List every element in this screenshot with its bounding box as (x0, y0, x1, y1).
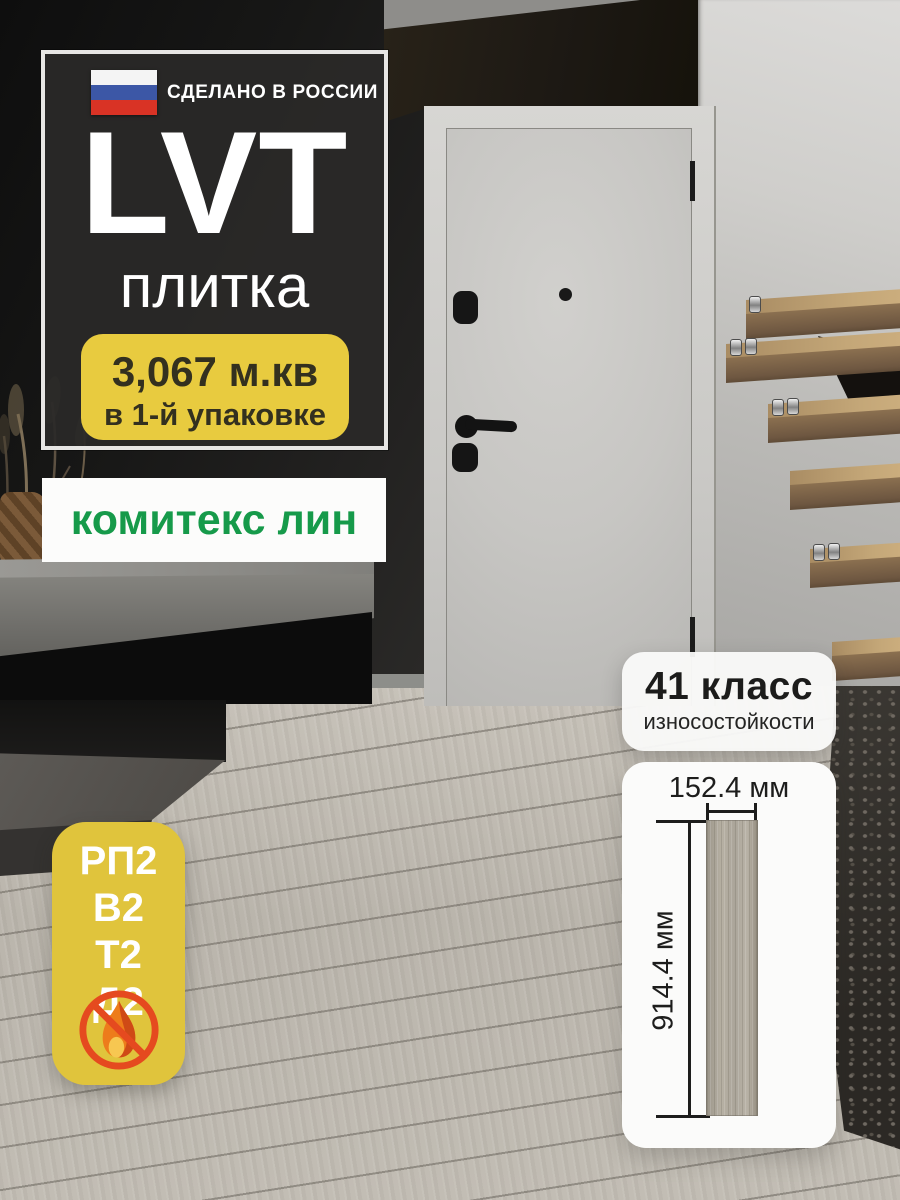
product-subtitle: плитка (45, 252, 384, 321)
stair-bracket (813, 544, 825, 561)
wear-class-value: 41 класс (622, 665, 836, 709)
pack-size-value: 3,067 м.кв (81, 348, 349, 396)
plank-sample (706, 820, 758, 1116)
stair-bracket (745, 338, 757, 355)
no-fire-icon (76, 987, 162, 1073)
pack-size-caption: в 1-й упаковке (81, 397, 349, 433)
stair-bracket (787, 398, 799, 415)
main-info-card: СДЕЛАНО В РОССИИ LVT плитка 3,067 м.кв в… (41, 50, 388, 450)
fire-class-item: РП2 (52, 838, 185, 885)
fire-class-item: Т2 (52, 932, 185, 979)
brand-logo-text: комитекс лин (71, 496, 357, 545)
peephole (559, 288, 572, 301)
stair-step (790, 471, 900, 516)
fire-class-item: В2 (52, 885, 185, 932)
door-leaf (446, 128, 692, 706)
plank-height-label: 914.4 мм (648, 896, 681, 1046)
pack-size-badge: 3,067 м.кв в 1-й упаковке (81, 334, 349, 440)
door-lock-cylinder (452, 443, 478, 472)
product-title: LVT (45, 110, 384, 256)
dimensions-card: 152.4 мм 914.4 мм (622, 762, 836, 1148)
stair-bracket (730, 339, 742, 356)
wear-class-badge: 41 класс износостойкости (622, 652, 836, 751)
bench-under-shadow (0, 700, 226, 762)
door-upper-lock (453, 291, 478, 324)
plank-width-label: 152.4 мм (622, 772, 836, 805)
vase (0, 492, 46, 564)
fire-safety-badge: РП2 В2 Т2 Д2 (52, 822, 185, 1085)
stair-bracket (828, 543, 840, 560)
height-dimension-line (688, 820, 691, 1118)
product-image: СДЕЛАНО В РОССИИ LVT плитка 3,067 м.кв в… (0, 0, 900, 1200)
wear-class-caption: износостойкости (622, 709, 836, 735)
width-dimension-line (706, 810, 757, 813)
stair-bracket (749, 296, 761, 313)
brand-logo-box: комитекс лин (42, 478, 386, 562)
door-hinge (690, 161, 695, 201)
door-hinge (690, 617, 695, 657)
door-frame (424, 106, 716, 706)
stair-bracket (772, 399, 784, 416)
stair-step (832, 642, 900, 687)
